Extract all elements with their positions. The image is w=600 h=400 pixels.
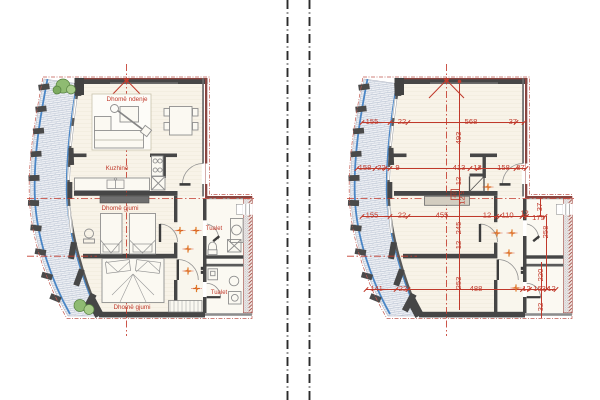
svg-text:22: 22 [377, 163, 385, 172]
svg-text:Dhomë gjumi: Dhomë gjumi [113, 304, 150, 311]
svg-text:Dhomë ndenje: Dhomë ndenje [107, 96, 148, 103]
svg-text:455: 455 [436, 210, 449, 219]
svg-text:163: 163 [533, 284, 546, 293]
svg-text:12: 12 [458, 196, 467, 204]
svg-text:253: 253 [454, 277, 463, 290]
svg-text:22: 22 [398, 117, 406, 126]
svg-text:12: 12 [547, 284, 555, 293]
svg-text:Tualet: Tualet [206, 226, 223, 232]
svg-text:220: 220 [536, 269, 545, 282]
svg-text:32: 32 [536, 303, 545, 311]
svg-text:245: 245 [454, 222, 463, 235]
svg-text:5: 5 [459, 190, 466, 194]
svg-text:40: 40 [453, 191, 459, 197]
svg-text:141: 141 [370, 284, 383, 293]
svg-text:37: 37 [509, 117, 517, 126]
svg-text:155: 155 [366, 117, 379, 126]
svg-text:12: 12 [522, 284, 530, 293]
svg-text:175: 175 [532, 213, 545, 222]
svg-text:12: 12 [483, 210, 491, 219]
svg-text:22: 22 [398, 210, 406, 219]
svg-text:258: 258 [541, 226, 550, 239]
svg-text:568: 568 [465, 117, 478, 126]
svg-text:158: 158 [497, 163, 510, 172]
svg-text:Tualet: Tualet [211, 290, 228, 296]
svg-text:12: 12 [473, 163, 481, 172]
svg-text:12: 12 [454, 177, 463, 185]
svg-text:12: 12 [520, 209, 528, 218]
svg-text:37: 37 [516, 163, 524, 172]
svg-text:12: 12 [454, 241, 463, 249]
svg-text:110: 110 [501, 210, 513, 219]
svg-text:9: 9 [395, 163, 399, 172]
svg-text:Kuzhinë: Kuzhinë [106, 165, 129, 172]
svg-text:488: 488 [470, 284, 483, 293]
svg-text:155: 155 [366, 210, 379, 219]
svg-text:493: 493 [454, 132, 463, 145]
svg-text:22: 22 [399, 284, 407, 293]
svg-text:Dhomë gjumi: Dhomë gjumi [101, 205, 138, 212]
svg-text:37: 37 [535, 203, 544, 211]
svg-text:158: 158 [359, 163, 372, 172]
